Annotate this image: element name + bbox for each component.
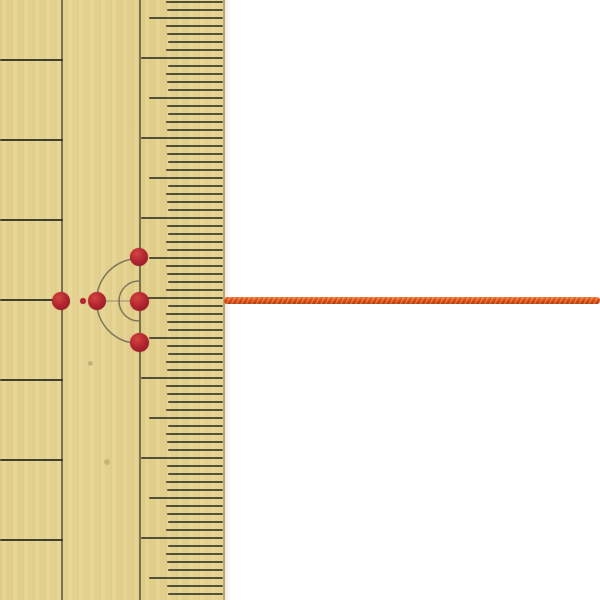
millimeter-tick	[168, 425, 223, 427]
millimeter-tick	[166, 121, 223, 123]
millimeter-tick	[168, 41, 223, 43]
millimeter-tick	[166, 505, 223, 507]
wood-blemish	[88, 361, 93, 366]
millimeter-tick	[168, 209, 223, 211]
millimeter-tick	[166, 49, 223, 51]
millimeter-tick	[167, 225, 223, 227]
orange-cord	[224, 297, 600, 304]
millimeter-tick	[168, 521, 223, 523]
millimeter-tick	[166, 313, 223, 315]
millimeter-tick	[167, 81, 223, 83]
millimeter-tick	[167, 153, 223, 155]
five-millimeter-tick	[149, 177, 223, 179]
small-marking-dot	[80, 298, 86, 304]
marking-dot	[130, 292, 149, 311]
millimeter-tick	[167, 273, 223, 275]
millimeter-tick	[166, 385, 223, 387]
millimeter-tick	[168, 449, 223, 451]
millimeter-tick	[168, 329, 223, 331]
centimeter-tick	[141, 377, 223, 379]
centimeter-line-left	[0, 539, 63, 542]
millimeter-tick	[168, 161, 223, 163]
millimeter-tick	[168, 305, 223, 307]
five-millimeter-tick	[149, 97, 223, 99]
millimeter-tick	[168, 89, 223, 91]
millimeter-tick	[168, 569, 223, 571]
millimeter-tick	[167, 513, 223, 515]
centimeter-line-left	[0, 139, 63, 142]
millimeter-tick	[167, 9, 223, 11]
millimeter-tick	[166, 409, 223, 411]
five-millimeter-tick	[149, 417, 223, 419]
millimeter-tick	[167, 393, 223, 395]
centimeter-tick	[141, 537, 223, 539]
five-millimeter-tick	[149, 337, 223, 339]
millimeter-tick	[168, 281, 223, 283]
millimeter-tick	[166, 169, 223, 171]
millimeter-tick	[166, 73, 223, 75]
five-millimeter-tick	[149, 497, 223, 499]
millimeter-tick	[167, 201, 223, 203]
five-millimeter-tick	[149, 257, 223, 259]
millimeter-tick	[168, 473, 223, 475]
millimeter-tick	[166, 25, 223, 27]
five-millimeter-tick	[149, 17, 223, 19]
centimeter-tick	[141, 457, 223, 459]
millimeter-tick	[167, 561, 223, 563]
millimeter-tick	[167, 369, 223, 371]
wood-blemish	[104, 459, 110, 465]
millimeter-tick	[166, 193, 223, 195]
millimeter-tick	[166, 265, 223, 267]
centimeter-tick	[141, 217, 223, 219]
marking-dot	[130, 333, 149, 352]
centimeter-line-left	[0, 59, 63, 62]
centimeter-tick	[141, 137, 223, 139]
millimeter-tick	[166, 1, 223, 3]
millimeter-tick	[167, 321, 223, 323]
millimeter-tick	[168, 233, 223, 235]
millimeter-tick	[167, 585, 223, 587]
centimeter-line-left	[0, 379, 63, 382]
millimeter-tick	[166, 481, 223, 483]
millimeter-tick	[168, 545, 223, 547]
millimeter-tick	[168, 353, 223, 355]
millimeter-tick	[166, 529, 223, 531]
marking-dot	[130, 248, 148, 266]
five-millimeter-tick	[149, 577, 223, 579]
millimeter-tick	[167, 345, 223, 347]
millimeter-tick	[166, 361, 223, 363]
marking-dot	[52, 292, 70, 310]
millimeter-tick	[167, 33, 223, 35]
millimeter-tick	[167, 129, 223, 131]
millimeter-tick	[168, 113, 223, 115]
millimeter-tick	[166, 553, 223, 555]
millimeter-tick	[166, 289, 223, 291]
centimeter-line-left	[0, 219, 63, 222]
millimeter-tick	[166, 145, 223, 147]
photo-canvas	[0, 0, 600, 600]
millimeter-tick	[167, 249, 223, 251]
millimeter-tick	[167, 105, 223, 107]
millimeter-tick	[166, 433, 223, 435]
millimeter-tick	[166, 241, 223, 243]
marking-dot	[88, 292, 106, 310]
millimeter-tick	[168, 185, 223, 187]
centimeter-line-left	[0, 459, 63, 462]
millimeter-tick	[167, 441, 223, 443]
millimeter-tick	[168, 401, 223, 403]
millimeter-tick	[168, 65, 223, 67]
centimeter-tick	[141, 297, 223, 299]
millimeter-tick	[167, 465, 223, 467]
millimeter-tick	[168, 593, 223, 595]
centimeter-tick	[141, 57, 223, 59]
millimeter-tick	[167, 489, 223, 491]
